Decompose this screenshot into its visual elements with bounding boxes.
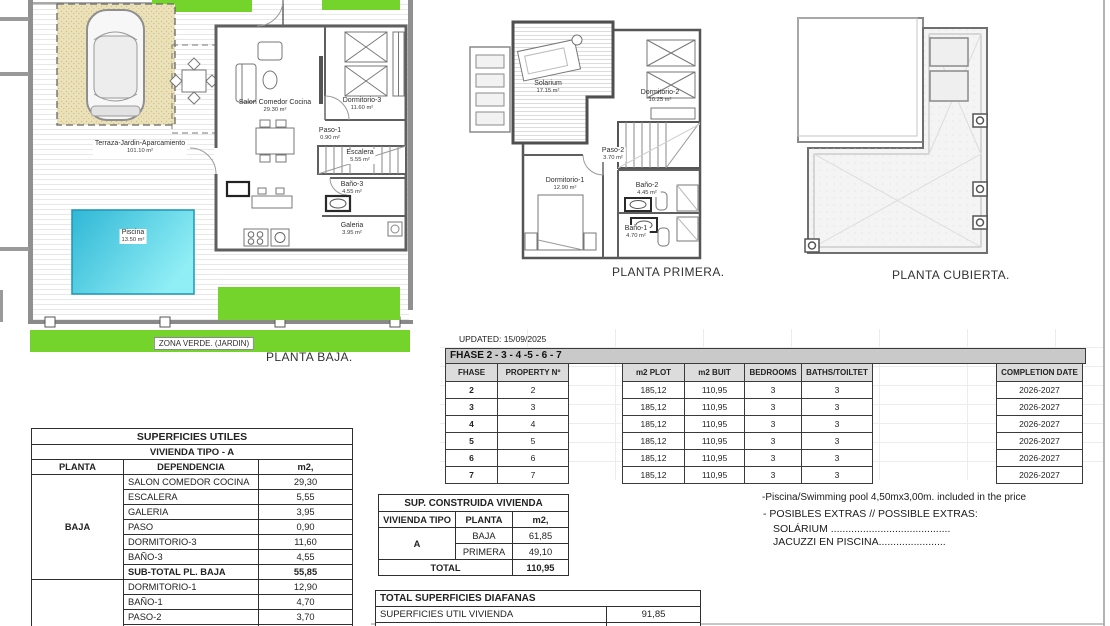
- phase-row: 7 7 185,12 110,95 3 3 2026-2027: [446, 467, 1083, 484]
- phase-row: 6 6 185,12 110,95 3 3 2026-2027: [446, 450, 1083, 467]
- neighbor-wall-stubs: [0, 17, 29, 322]
- caption-planta-primera: PLANTA PRIMERA.: [612, 265, 724, 279]
- df-title: TOTAL SUPERFICIES DIAFANAS: [376, 591, 701, 607]
- plot-wall-right: [408, 0, 413, 310]
- caption-planta-cubierta: PLANTA CUBIERTA.: [892, 268, 1010, 282]
- roof-hatch-lower: [930, 71, 968, 101]
- plot-wall-bottom: [28, 320, 413, 324]
- room-label-galeria: Galeria 3.95 m²: [341, 222, 364, 237]
- su-title: SUPERFICIES UTILES: [32, 429, 353, 445]
- zona-verde-label: ZONA VERDE. (JARDIN): [154, 337, 254, 350]
- su-header-row: PLANTA DEPENDENCIA m2,: [32, 460, 353, 475]
- df-row: SUPERFICIES UTIL VIVIENDA 91,85: [376, 607, 701, 623]
- note-extra-jacuzzi: JACUZZI EN PISCINA......................…: [773, 536, 946, 548]
- room-label-bano3: Baño-3 4.55 m²: [341, 181, 364, 196]
- green-strip-top-right: [322, 0, 400, 10]
- sc-title: SUP. CONSTRUIDA VIVIENDA: [379, 495, 569, 512]
- su-row: BAJA SALON COMEDOR COCINA 29,30: [32, 475, 353, 490]
- roof-hatch-upper: [930, 38, 968, 66]
- sup-construida-table: SUP. CONSTRUIDA VIVIENDA VIVIENDA TIPO P…: [378, 494, 569, 576]
- stairs-primera: [618, 122, 700, 168]
- phase-row: 4 4 185,12 110,95 3 3 2026-2027: [446, 416, 1083, 433]
- col-header-bedrooms: BEDROOMS: [745, 364, 802, 382]
- note-extras-title: - POSIBLES EXTRAS // POSSIBLE EXTRAS:: [763, 508, 978, 520]
- col-header-completion: COMPLETION DATE: [997, 364, 1083, 382]
- solarium-stool: [572, 35, 582, 45]
- balcony: [470, 47, 510, 132]
- col-header-built: m2 BUIT: [685, 364, 745, 382]
- room-label-dormitorio2: Dormitorio-2 10.25 m²: [641, 89, 680, 104]
- note-pool-included: -Piscina/Swimming pool 4,50mx3,00m. incl…: [762, 492, 1026, 503]
- plan-baja-drawing: [0, 0, 445, 368]
- room-label-dormitorio1: Dormitorio-1 12.90 m²: [546, 177, 585, 192]
- sc-total-row: TOTAL 110,95: [379, 560, 569, 576]
- superficies-utiles-table: SUPERFICIES UTILES VIVIENDA TIPO - A PLA…: [31, 428, 353, 626]
- phase-table: FHASE PROPERTY Nº m2 PLOT m2 BUIT BEDROO…: [445, 363, 1083, 484]
- car-top-view: [87, 10, 144, 120]
- plan-planta-cubierta: PLANTA CUBIERTA.: [790, 0, 1110, 300]
- room-label-dormitorio3: Dormitorio-3 11.60 m²: [343, 97, 382, 112]
- plan-planta-baja: Terraza-Jardin-Aparcamiento 101.10 m² Sa…: [0, 0, 445, 368]
- green-zone-inner: [218, 287, 400, 320]
- su-subtitle: VIVIENDA TIPO - A: [32, 445, 353, 460]
- sc-header-row: VIVIENDA TIPO PLANTA m2,: [379, 512, 569, 528]
- updated-date: UPDATED: 15/09/2025: [459, 334, 546, 344]
- room-label-bano2: Baño-2 4.45 m²: [634, 182, 661, 197]
- df-row: SOLARIUM PL. PRIMERA 17,15: [376, 623, 701, 626]
- col-header-property: PROPERTY Nº: [498, 364, 569, 382]
- diafanas-table: TOTAL SUPERFICIES DIAFANAS SUPERFICIES U…: [375, 590, 701, 626]
- room-label-escalera: Escalera 5.55 m²: [344, 149, 375, 164]
- plot-wall-left: [28, 0, 33, 322]
- phase-row: 2 2 185,12 110,95 3 3 2026-2027: [446, 382, 1083, 399]
- room-label-terraza: Terraza-Jardin-Aparcamiento 101.10 m²: [93, 140, 187, 155]
- room-label-bano1: Baño-1 4.70 m²: [623, 225, 650, 240]
- room-label-paso2: Paso-2 3.70 m²: [600, 147, 626, 162]
- phase-table-header-row: FHASE PROPERTY Nº m2 PLOT m2 BUIT BEDROO…: [446, 364, 1083, 382]
- room-label-piscina: Piscina 13.50 m²: [120, 229, 147, 244]
- col-header-fhase: FHASE: [446, 364, 498, 382]
- room-label-solarium: Solarium 17.15 m²: [534, 80, 562, 95]
- col-header-plot: m2 PLOT: [623, 364, 685, 382]
- sc-tipo: A: [379, 528, 456, 560]
- su-primera-label: PRIMERA: [32, 580, 124, 626]
- upper-roof-block: [798, 18, 923, 142]
- caption-planta-baja: PLANTA BAJA.: [266, 350, 353, 364]
- su-baja-label: BAJA: [32, 475, 124, 580]
- phase-band-header: FHASE 2 - 3 - 4 -5 - 6 - 7: [445, 348, 1086, 364]
- swimming-pool: [72, 210, 194, 294]
- plan-sheet: Terraza-Jardin-Aparcamiento 101.10 m² Sa…: [0, 0, 1110, 626]
- room-label-paso1: Paso-1 0.90 m²: [319, 127, 341, 142]
- col-header-baths: BATHS/TOILTET: [802, 364, 873, 382]
- sc-row: A BAJA 61,85: [379, 528, 569, 544]
- phase-row: 5 5 185,12 110,95 3 3 2026-2027: [446, 433, 1083, 450]
- room-label-salon: Salon Comedor Cocina 29.30 m²: [239, 99, 311, 114]
- plan-planta-primera: Solarium 17.15 m² Dormitorio-2 10.25 m² …: [455, 0, 790, 290]
- phase-row: 3 3 185,12 110,95 3 3 2026-2027: [446, 399, 1083, 416]
- plan-cubierta-drawing: [790, 0, 1110, 300]
- su-row: PRIMERA DORMITORIO-1 12,90: [32, 580, 353, 595]
- plan-primera-drawing: [455, 0, 790, 290]
- note-extra-solarium: SOLÁRIUM ...............................…: [773, 523, 950, 535]
